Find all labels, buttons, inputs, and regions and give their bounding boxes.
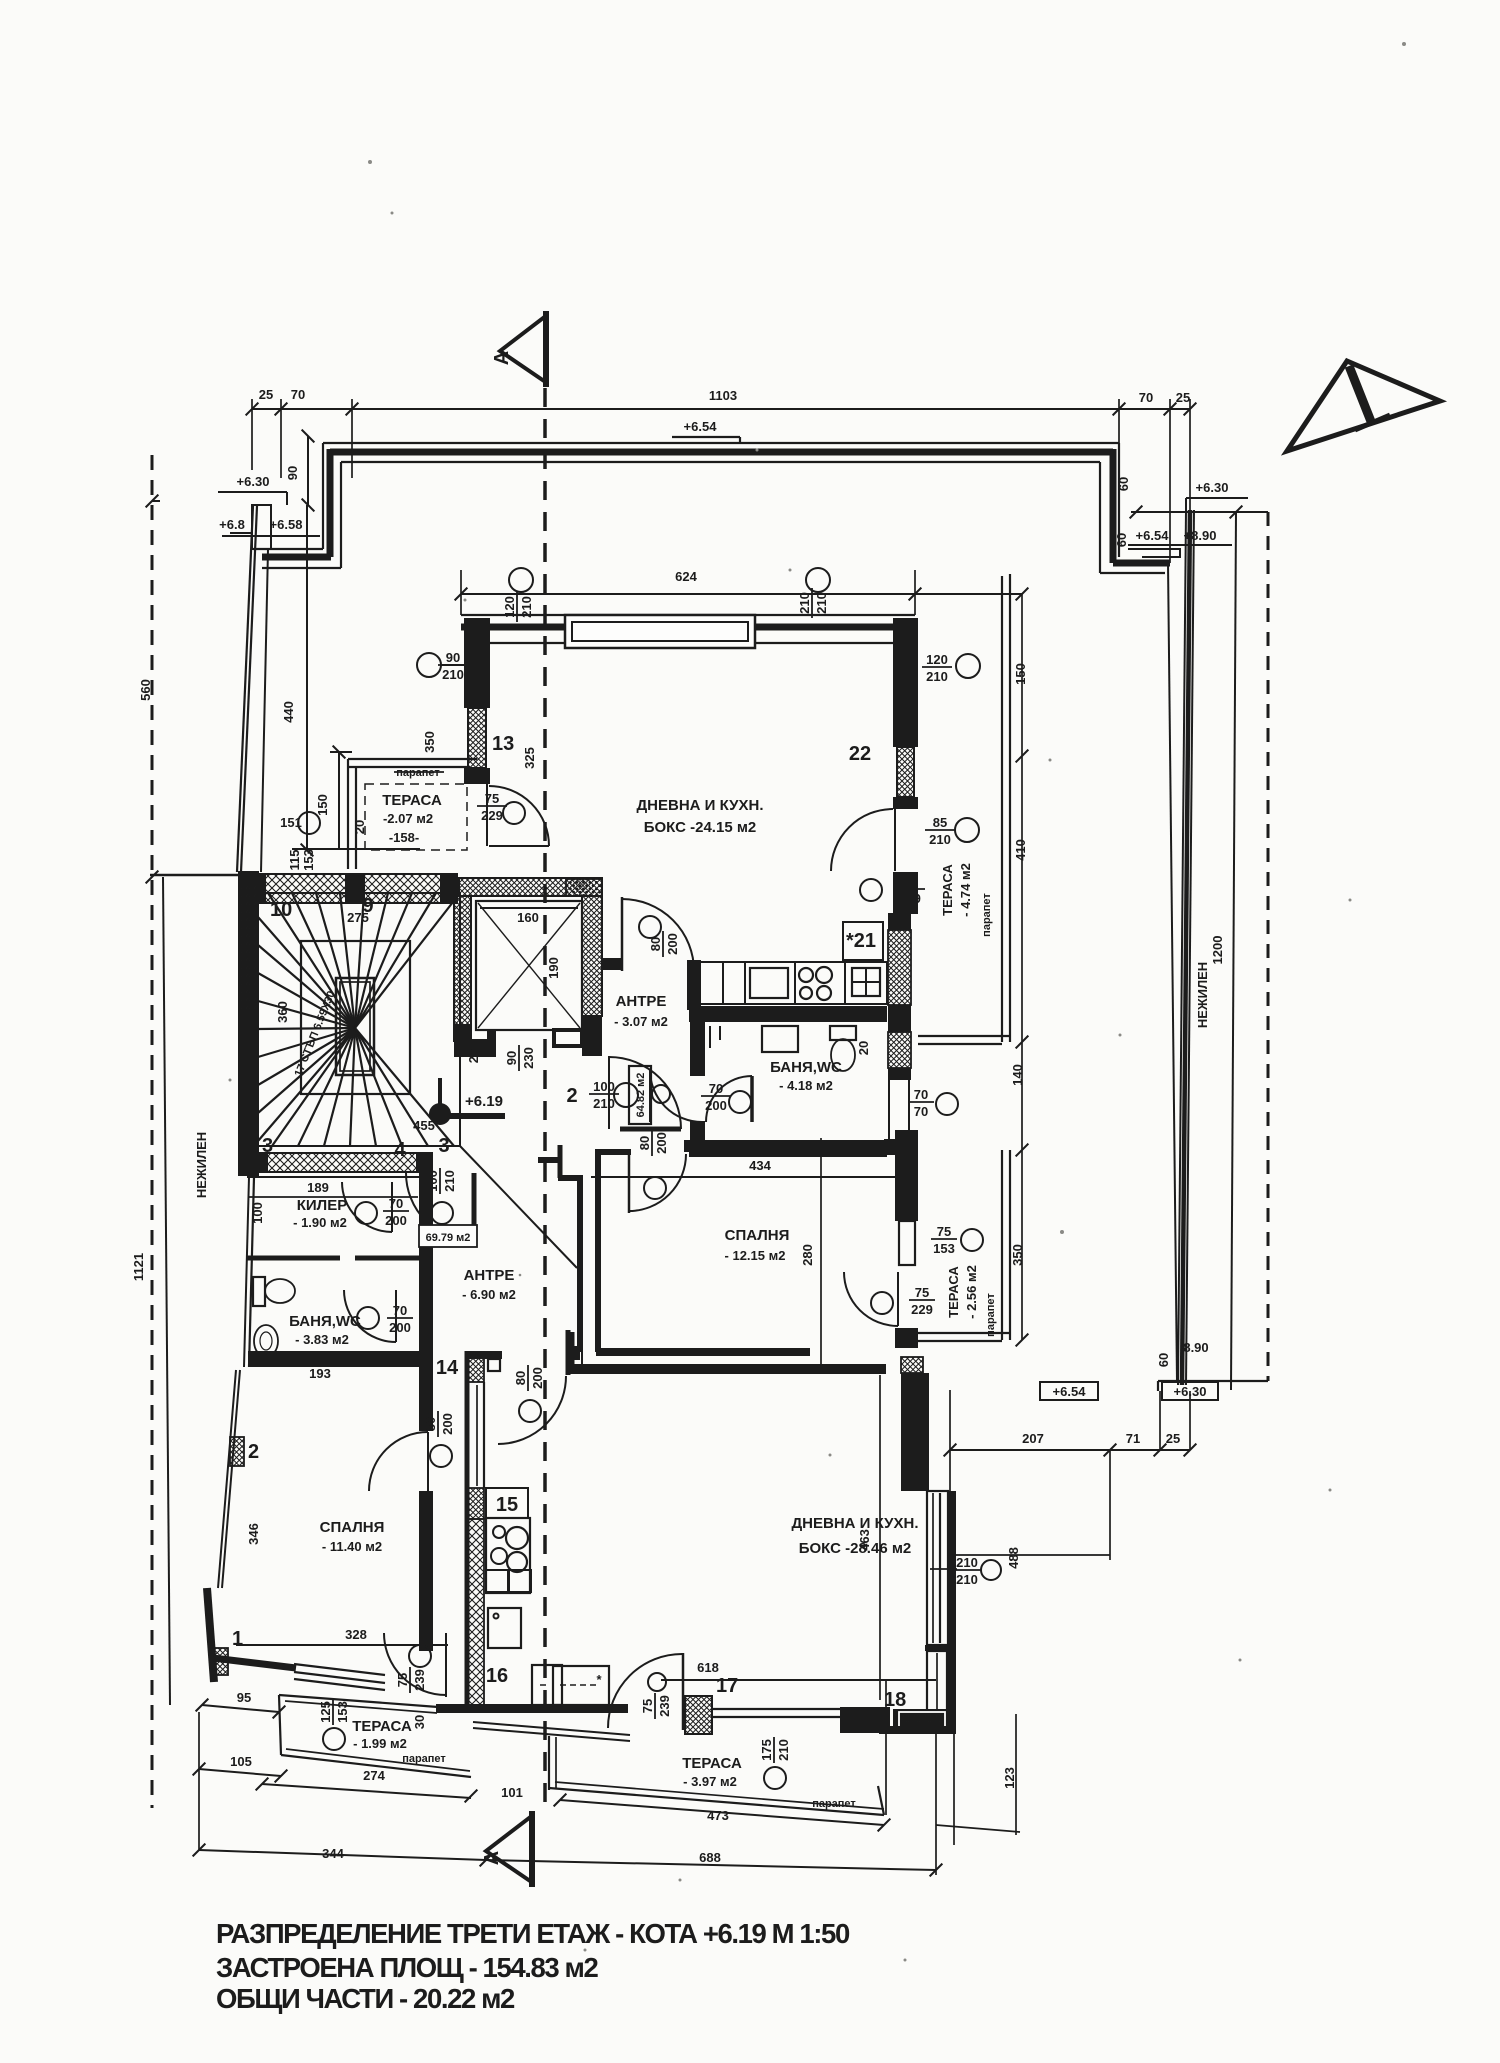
svg-text:210: 210 — [519, 596, 534, 618]
svg-text:ТЕРАСА: ТЕРАСА — [382, 792, 442, 809]
svg-text:РАЗПРЕДЕЛЕНИЕ ТРЕТИ ЕТАЖ - КОТ: РАЗПРЕДЕЛЕНИЕ ТРЕТИ ЕТАЖ - КОТА +6.19 М … — [216, 1918, 850, 1949]
svg-text:80: 80 — [637, 1136, 652, 1150]
svg-text:488: 488 — [1006, 1547, 1021, 1569]
svg-text:210: 210 — [929, 832, 951, 847]
svg-text:688: 688 — [699, 1850, 721, 1865]
svg-text:440: 440 — [281, 701, 296, 723]
svg-text:+6.30: +6.30 — [1196, 480, 1229, 495]
svg-text:275: 275 — [347, 910, 369, 925]
svg-text:+6.54: +6.54 — [1136, 528, 1170, 543]
svg-text:230: 230 — [521, 1047, 536, 1069]
svg-text:А: А — [491, 351, 513, 365]
svg-text:АНТРЕ: АНТРЕ — [464, 1267, 515, 1284]
svg-text:КИЛЕР: КИЛЕР — [297, 1197, 347, 1214]
svg-text:18: 18 — [884, 1689, 906, 1711]
svg-text:3: 3 — [438, 1135, 449, 1157]
svg-text:22: 22 — [849, 743, 871, 765]
svg-text:- 2.56 м2: - 2.56 м2 — [964, 1265, 979, 1319]
svg-text:229: 229 — [481, 808, 503, 823]
svg-text:- 1.99 м2: - 1.99 м2 — [353, 1736, 407, 1751]
svg-text:14: 14 — [436, 1357, 459, 1379]
svg-text:ДНЕВНА И КУХН.: ДНЕВНА И КУХН. — [636, 797, 763, 814]
svg-text:1121: 1121 — [131, 1253, 146, 1281]
svg-text:16: 16 — [486, 1665, 508, 1687]
svg-text:+6.58: +6.58 — [270, 517, 303, 532]
svg-text:- 4.18 м2: - 4.18 м2 — [779, 1078, 833, 1093]
svg-text:парапет: парапет — [402, 1753, 446, 1765]
svg-text:25: 25 — [259, 387, 273, 402]
svg-text:80: 80 — [423, 1417, 438, 1431]
svg-text:210: 210 — [593, 1096, 615, 1111]
svg-text:239: 239 — [657, 1695, 672, 1717]
svg-text:150: 150 — [1013, 663, 1028, 685]
svg-text:120: 120 — [926, 652, 948, 667]
svg-text:30: 30 — [412, 1715, 427, 1729]
svg-text:+6.54: +6.54 — [1053, 1384, 1087, 1399]
svg-text:70: 70 — [1139, 390, 1153, 405]
svg-text:325: 325 — [522, 747, 537, 769]
svg-text:70: 70 — [389, 1196, 403, 1211]
svg-text:210: 210 — [956, 1555, 978, 1570]
svg-text:200: 200 — [705, 1098, 727, 1113]
svg-text:*21: *21 — [846, 930, 876, 952]
svg-text:20: 20 — [466, 1049, 481, 1063]
svg-text:624: 624 — [675, 569, 697, 584]
svg-text:ТЕРАСА: ТЕРАСА — [946, 1266, 961, 1318]
svg-text:346: 346 — [246, 1523, 261, 1545]
svg-text:120: 120 — [502, 596, 517, 618]
svg-text:210: 210 — [926, 669, 948, 684]
svg-text:193: 193 — [309, 1366, 331, 1381]
svg-text:70: 70 — [914, 1104, 928, 1119]
svg-text:парапет: парапет — [981, 893, 993, 937]
svg-text:75: 75 — [915, 1285, 929, 1300]
svg-text:410: 410 — [1013, 839, 1028, 861]
svg-text:150: 150 — [315, 794, 330, 816]
svg-text:парапет: парапет — [812, 1798, 856, 1810]
svg-text:210: 210 — [442, 1170, 457, 1192]
svg-text:69.79 м2: 69.79 м2 — [426, 1232, 471, 1244]
svg-text:15: 15 — [496, 1494, 518, 1516]
svg-text:200: 200 — [654, 1132, 669, 1154]
svg-text:75: 75 — [485, 791, 499, 806]
svg-text:70: 70 — [393, 1303, 407, 1318]
svg-text:парапет: парапет — [985, 1293, 997, 1337]
svg-text:1200: 1200 — [1210, 936, 1225, 965]
svg-text:ТЕРАСА: ТЕРАСА — [352, 1718, 412, 1735]
svg-text:- 4.74 м2: - 4.74 м2 — [958, 863, 973, 917]
svg-text:+6.8: +6.8 — [219, 517, 245, 532]
svg-text:64.82 м2: 64.82 м2 — [635, 1073, 647, 1118]
svg-text:75: 75 — [937, 1224, 951, 1239]
svg-text:-158-: -158- — [389, 830, 419, 845]
svg-text:200: 200 — [440, 1413, 455, 1435]
svg-text:200: 200 — [530, 1367, 545, 1389]
svg-text:360: 360 — [275, 1001, 290, 1023]
svg-text:153: 153 — [301, 849, 316, 871]
svg-text:85: 85 — [933, 815, 947, 830]
svg-text:350: 350 — [422, 731, 437, 753]
svg-text:- 3.07 м2: - 3.07 м2 — [614, 1014, 668, 1029]
svg-text:+6.19: +6.19 — [465, 1093, 503, 1110]
svg-text:344: 344 — [322, 1846, 344, 1861]
svg-text:ТЕРАСА: ТЕРАСА — [682, 1755, 742, 1772]
svg-text:473: 473 — [707, 1808, 729, 1823]
svg-text:- 12.15 м2: - 12.15 м2 — [725, 1248, 786, 1263]
svg-text:25: 25 — [1176, 390, 1190, 405]
svg-text:207: 207 — [1022, 1431, 1044, 1446]
svg-text:100: 100 — [250, 1202, 265, 1224]
svg-text:- 11.40 м2: - 11.40 м2 — [322, 1539, 382, 1554]
svg-text:455: 455 — [413, 1118, 435, 1133]
svg-text:200: 200 — [389, 1320, 411, 1335]
svg-text:1: 1 — [232, 1628, 243, 1650]
svg-text:190: 190 — [546, 957, 561, 979]
svg-text:60: 60 — [1114, 533, 1129, 547]
svg-text:СПАЛНЯ: СПАЛНЯ — [320, 1519, 385, 1536]
svg-text:160: 160 — [517, 910, 539, 925]
svg-text:210: 210 — [814, 592, 829, 614]
svg-text:90: 90 — [285, 466, 300, 480]
svg-text:200: 200 — [665, 933, 680, 955]
svg-text:1103: 1103 — [709, 388, 737, 403]
svg-text:90: 90 — [446, 650, 460, 665]
svg-text:+6.54: +6.54 — [684, 419, 718, 434]
svg-text:20: 20 — [856, 1041, 871, 1055]
svg-text:+6.30: +6.30 — [237, 474, 270, 489]
svg-text:560: 560 — [138, 679, 153, 701]
svg-text:НЕЖИЛЕН: НЕЖИЛЕН — [1195, 962, 1210, 1028]
svg-text:75: 75 — [395, 1673, 410, 1687]
svg-text:60: 60 — [1156, 1353, 1171, 1367]
svg-text:- 3.83 м2: - 3.83 м2 — [295, 1332, 349, 1347]
svg-text:17: 17 — [716, 1675, 738, 1697]
svg-text:ОБЩИ ЧАСТИ - 20.22 м2: ОБЩИ ЧАСТИ - 20.22 м2 — [216, 1983, 515, 2014]
svg-text:20: 20 — [352, 820, 367, 834]
svg-text:71: 71 — [1126, 1431, 1140, 1446]
svg-text:210: 210 — [776, 1739, 791, 1761]
svg-text:105: 105 — [230, 1754, 252, 1769]
svg-text:95: 95 — [237, 1690, 251, 1705]
svg-text:75: 75 — [640, 1699, 655, 1713]
svg-text:100: 100 — [593, 1079, 615, 1094]
svg-text:17 СТЪП 6.59X30: 17 СТЪП 6.59X30 — [293, 989, 338, 1078]
svg-text:- 6.90 м2: - 6.90 м2 — [462, 1287, 516, 1302]
svg-text:БАНЯ,WC: БАНЯ,WC — [770, 1059, 842, 1076]
svg-text:ДНЕВНА И КУХН.: ДНЕВНА И КУХН. — [791, 1515, 918, 1532]
svg-text:70: 70 — [914, 1087, 928, 1102]
svg-text:60: 60 — [1116, 477, 1131, 491]
svg-text:2: 2 — [566, 1085, 577, 1107]
svg-text:2: 2 — [248, 1441, 259, 1463]
svg-text:210: 210 — [797, 592, 812, 614]
svg-text:350: 350 — [1010, 1244, 1025, 1266]
svg-text:БОКС -28.46 м2: БОКС -28.46 м2 — [799, 1540, 912, 1557]
svg-text:463: 463 — [857, 1529, 872, 1551]
svg-text:80: 80 — [648, 937, 663, 951]
svg-text:328: 328 — [345, 1627, 367, 1642]
svg-text:10: 10 — [270, 899, 292, 921]
svg-text:+8.90: +8.90 — [1184, 528, 1217, 543]
svg-text:101: 101 — [501, 1785, 523, 1800]
svg-text:70: 70 — [291, 387, 305, 402]
svg-text:*: * — [596, 1672, 602, 1687]
svg-text:618: 618 — [697, 1660, 719, 1675]
svg-text:80: 80 — [513, 1371, 528, 1385]
svg-text:ТЕРАСА: ТЕРАСА — [940, 864, 955, 916]
svg-text:210: 210 — [442, 667, 464, 682]
svg-text:СПАЛНЯ: СПАЛНЯ — [725, 1227, 790, 1244]
svg-text:200: 200 — [385, 1213, 407, 1228]
svg-text:БОКС -24.15 м2: БОКС -24.15 м2 — [644, 819, 757, 836]
svg-text:210: 210 — [956, 1572, 978, 1587]
svg-text:- 3.97 м2: - 3.97 м2 — [683, 1774, 737, 1789]
svg-text:НЕЖИЛЕН: НЕЖИЛЕН — [194, 1132, 209, 1198]
svg-text:239: 239 — [412, 1669, 427, 1691]
svg-text:274: 274 — [363, 1768, 385, 1783]
svg-text:АНТРЕ: АНТРЕ — [616, 993, 667, 1010]
svg-text:-2.07 м2: -2.07 м2 — [383, 811, 433, 826]
svg-text:- 1.90 м2: - 1.90 м2 — [293, 1215, 347, 1230]
svg-text:123: 123 — [1002, 1767, 1017, 1789]
svg-text:175: 175 — [759, 1739, 774, 1761]
svg-text:13: 13 — [492, 733, 514, 755]
svg-text:229: 229 — [911, 1302, 933, 1317]
svg-text:434: 434 — [749, 1158, 771, 1173]
svg-text:153: 153 — [933, 1241, 955, 1256]
svg-text:90: 90 — [504, 1051, 519, 1065]
svg-text:189: 189 — [307, 1180, 329, 1195]
svg-text:70: 70 — [709, 1081, 723, 1096]
svg-text:140: 140 — [1010, 1064, 1025, 1086]
svg-text:115: 115 — [287, 850, 302, 871]
svg-text:280: 280 — [800, 1244, 815, 1266]
svg-text:парапет: парапет — [396, 767, 440, 779]
svg-text:8.90: 8.90 — [1183, 1340, 1208, 1355]
svg-text:25: 25 — [1166, 1431, 1180, 1446]
svg-text:ЗАСТРОЕНА ПЛОЩ - 154.83 м2: ЗАСТРОЕНА ПЛОЩ - 154.83 м2 — [216, 1952, 598, 1983]
